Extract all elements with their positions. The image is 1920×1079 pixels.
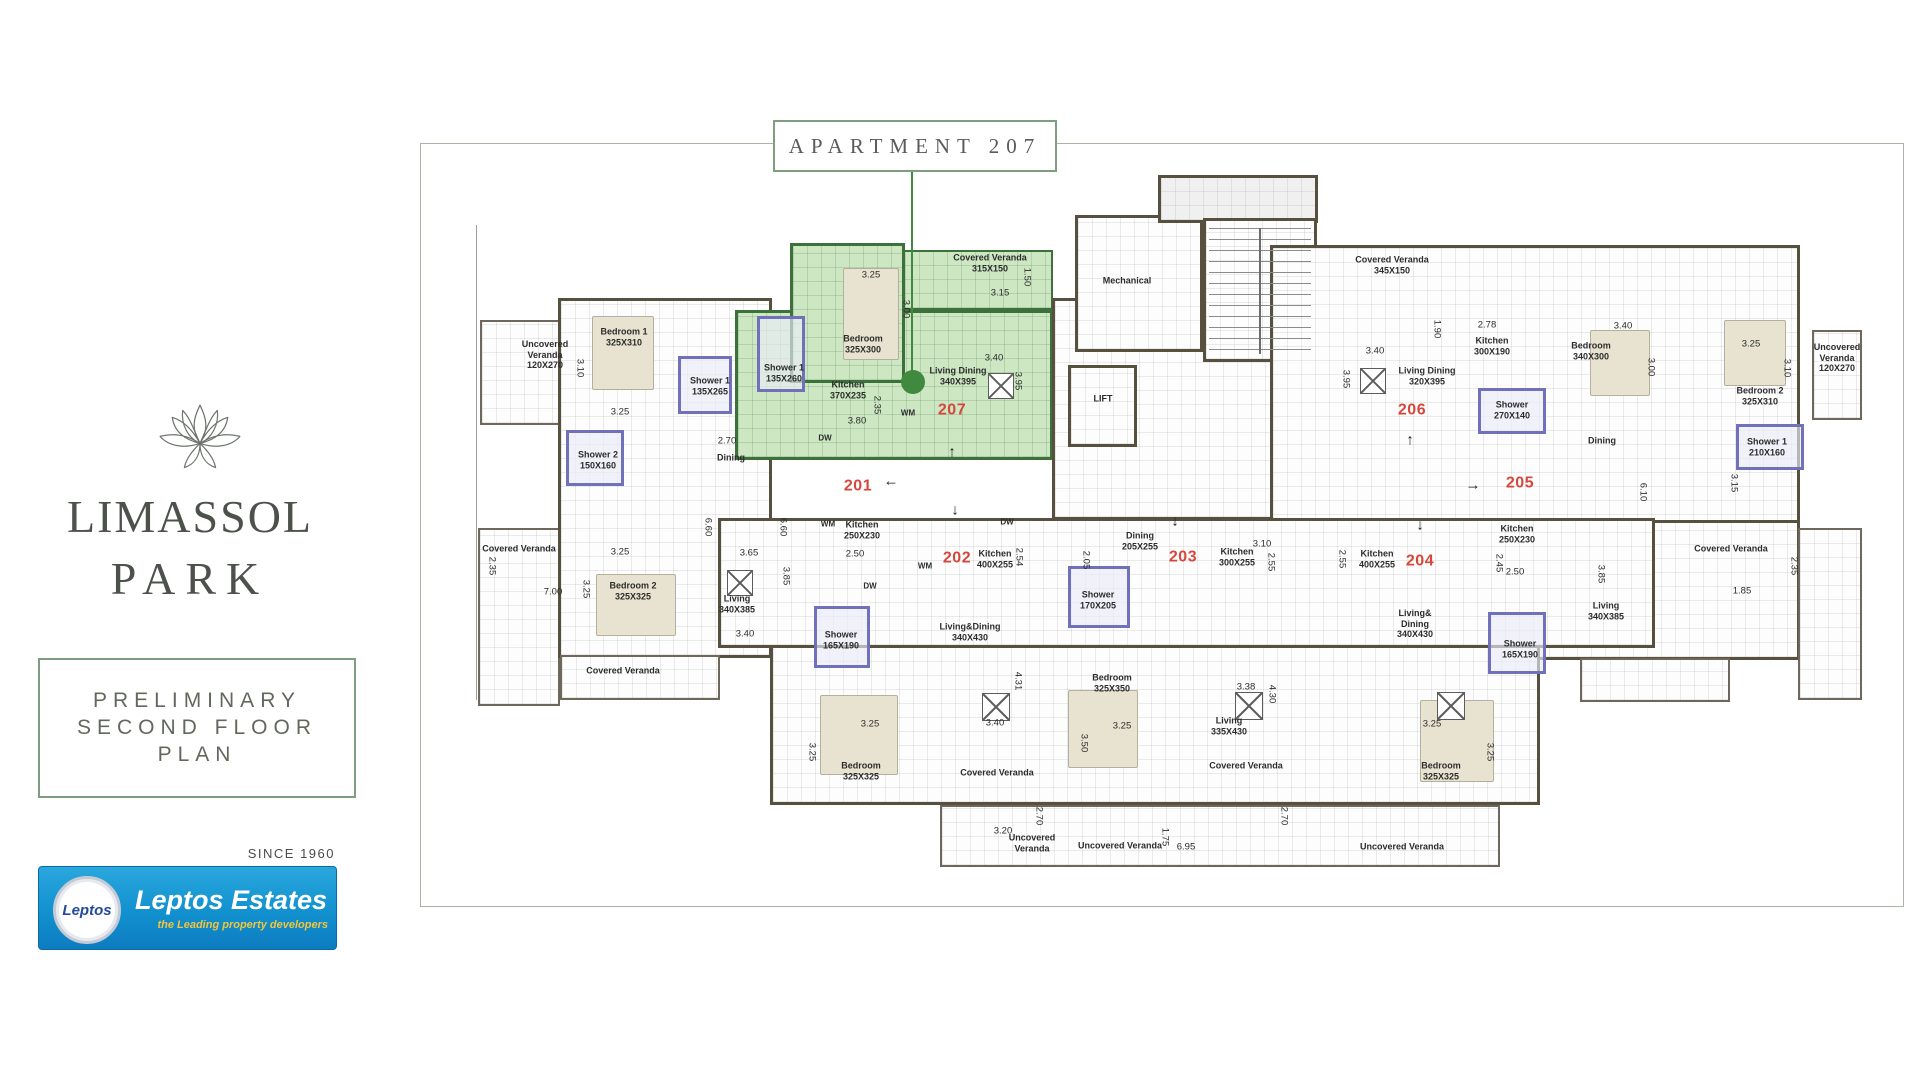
leptos-banner: Leptos Leptos Estates the Leading proper… xyxy=(38,866,337,950)
room-label: Covered Veranda xyxy=(1694,544,1768,555)
dimension-label: 2.35 xyxy=(486,557,497,576)
table-icon xyxy=(1437,692,1465,720)
room-label: Covered Veranda xyxy=(482,544,556,555)
dimension-label: 3.40 xyxy=(986,717,1005,728)
appliance-label: WM xyxy=(901,408,915,417)
room-label: Kitchen 300X190 xyxy=(1474,335,1510,356)
since-label: SINCE 1960 xyxy=(38,846,335,861)
table-icon xyxy=(1360,368,1386,394)
veranda-covered-left xyxy=(478,528,560,706)
room-label: Living&Dining 340X430 xyxy=(940,621,1001,642)
room-label: Uncovered Veranda 120X270 xyxy=(1814,342,1861,374)
dimension-label: 3.95 xyxy=(1012,372,1023,391)
dimension-label: 3.25 xyxy=(1113,720,1132,731)
leptos-tagline: the Leading property developers xyxy=(157,919,328,931)
room-label: Bedroom 325X350 xyxy=(1092,672,1132,693)
room-label: Bedroom 325X325 xyxy=(841,760,881,781)
room-label: Shower 1 135X265 xyxy=(690,375,730,396)
leptos-name: Leptos Estates xyxy=(131,885,331,916)
dimension-label: 3.25 xyxy=(611,406,630,417)
entry-arrow-icon: ↑ xyxy=(1406,432,1414,449)
dimension-label: 3.00 xyxy=(900,300,911,319)
room-label: Shower 270X140 xyxy=(1494,399,1530,420)
dimension-label: 1.50 xyxy=(1021,268,1032,287)
room-label: Covered Veranda xyxy=(1209,761,1283,772)
brand-name-line1: LIMASSOL xyxy=(40,490,340,543)
dimension-label: 3.85 xyxy=(1595,565,1606,584)
room-label: Covered Veranda xyxy=(586,666,660,677)
room-label: Kitchen 300X255 xyxy=(1219,546,1255,567)
dimension-label: 2.50 xyxy=(846,548,865,559)
dimension-label: 4.30 xyxy=(1266,685,1277,704)
dimension-label: 1.90 xyxy=(1431,320,1442,339)
block-lift xyxy=(1068,365,1137,447)
room-label: Kitchen 250X230 xyxy=(1499,523,1535,544)
dimension-label: 2.50 xyxy=(1506,566,1525,577)
dimension-label: 3.40 xyxy=(736,628,755,639)
appliance-label: WM xyxy=(821,519,835,528)
leptos-badge-text: Leptos xyxy=(62,902,111,919)
dimension-label: 3.25 xyxy=(1484,743,1495,762)
room-label: Uncovered Veranda xyxy=(1078,841,1162,852)
room-label: Kitchen 250X230 xyxy=(844,519,880,540)
dimension-label: 7.00 xyxy=(544,586,563,597)
room-label: Shower 170X205 xyxy=(1080,589,1116,610)
room-label: Shower 1 135X260 xyxy=(764,362,804,383)
dimension-label: 3.40 xyxy=(985,352,1004,363)
room-label: Covered Veranda xyxy=(960,768,1034,779)
entry-arrow-icon: ↑ xyxy=(948,444,956,461)
dimension-label: 2.35 xyxy=(871,396,882,415)
entry-arrow-icon: → xyxy=(1466,477,1481,494)
room-label: LIFT xyxy=(1094,394,1113,405)
apartment-callout: APARTMENT 207 xyxy=(773,120,1057,172)
plan-title-line1: PRELIMINARY xyxy=(40,689,354,713)
dimension-label: 2.78 xyxy=(1478,319,1497,330)
dimension-label: 3.25 xyxy=(580,580,591,599)
dimension-label: 2.35 xyxy=(1788,557,1799,576)
apartment-number-label: 204 xyxy=(1406,553,1434,572)
dimension-label: 2.05 xyxy=(1080,551,1091,570)
room-label: Shower 165X190 xyxy=(1502,638,1538,659)
apartment-number-label: 207 xyxy=(938,402,966,421)
plan-title-box: PRELIMINARY SECOND FLOOR PLAN xyxy=(38,658,356,798)
dimension-label: 3.80 xyxy=(848,415,867,426)
room-label: Living Dining 320X395 xyxy=(1399,365,1456,386)
room-label: Bedroom 2 325X325 xyxy=(609,580,656,601)
dimension-label: 3.15 xyxy=(991,287,1010,298)
appliance-label: DW xyxy=(1000,517,1013,526)
room-label: Dining xyxy=(717,453,745,464)
dimension-label: 2.54 xyxy=(1013,548,1024,567)
room-label: Bedroom 325X325 xyxy=(1421,760,1461,781)
room-label: Shower 2 150X160 xyxy=(578,449,618,470)
dimension-label: 1.75 xyxy=(1159,828,1170,847)
dimension-label: 3.50 xyxy=(1078,734,1089,753)
entry-arrow-icon: ↓ xyxy=(1171,513,1179,530)
dimension-label: 3.25 xyxy=(611,546,630,557)
room-label: Living& Dining 340X430 xyxy=(1397,608,1433,640)
plan-title-line2: SECOND FLOOR xyxy=(40,716,354,740)
apartment-number-label: 205 xyxy=(1506,475,1534,494)
veranda-covered-right xyxy=(1798,528,1862,700)
table-icon xyxy=(988,373,1014,399)
room-label: Shower 1 210X160 xyxy=(1747,436,1787,457)
brand-name-line2: PARK xyxy=(40,552,340,605)
dimension-label: 3.65 xyxy=(740,547,759,558)
room-label: Shower 165X190 xyxy=(823,629,859,650)
dimension-label: 3.40 xyxy=(1366,345,1385,356)
entry-arrow-icon: ← xyxy=(884,473,899,490)
apartment-number-label: 201 xyxy=(844,478,872,497)
appliance-label: DW xyxy=(818,433,831,442)
room-label: Covered Veranda 345X150 xyxy=(1355,254,1429,275)
dimension-label: 3.00 xyxy=(1645,358,1656,377)
callout-leader-line xyxy=(911,166,913,374)
room-label: Covered Veranda 315X150 xyxy=(953,252,1027,273)
dimension-label: 3.10 xyxy=(1253,538,1272,549)
apartment-number-label: 203 xyxy=(1169,549,1197,568)
dimension-label: 3.38 xyxy=(1237,681,1256,692)
veranda-uncovered-left xyxy=(480,320,568,425)
dimension-label: 3.15 xyxy=(1728,474,1739,493)
dimension-label: 2.55 xyxy=(1265,553,1276,572)
dimension-label: 3.25 xyxy=(861,718,880,729)
dimension-label: 3.10 xyxy=(574,359,585,378)
staircase-divider xyxy=(1259,228,1261,354)
dimension-label: 2.45 xyxy=(1493,554,1504,573)
page: LIMASSOL PARK PRELIMINARY SECOND FLOOR P… xyxy=(0,0,1920,1079)
dimension-label: 2.70 xyxy=(718,435,737,446)
apartment-number-label: 202 xyxy=(943,550,971,569)
dimension-label: 4.31 xyxy=(1012,672,1023,691)
veranda-covered-205 xyxy=(1580,658,1730,702)
dimension-label: 1.85 xyxy=(1733,585,1752,596)
dimension-label: 6.10 xyxy=(1637,483,1648,502)
dimension-label: 3.40 xyxy=(1614,320,1633,331)
leptos-badge-icon: Leptos xyxy=(53,876,121,944)
table-icon xyxy=(727,570,753,596)
room-label: Bedroom 1 325X310 xyxy=(600,326,647,347)
room-label: Kitchen 400X255 xyxy=(1359,548,1395,569)
room-label: Living 340X385 xyxy=(1588,600,1624,621)
lotus-logo-icon xyxy=(148,398,252,480)
dimension-label: 3.95 xyxy=(1340,370,1351,389)
dimension-label: 6.95 xyxy=(1177,841,1196,852)
appliance-label: DW xyxy=(863,581,876,590)
block-stair-bulkhead xyxy=(1158,175,1318,223)
room-label: Kitchen 370X235 xyxy=(830,379,866,400)
dimension-label: 6.60 xyxy=(702,518,713,537)
site-edge-line xyxy=(476,225,477,700)
dimension-label: 3.25 xyxy=(806,743,817,762)
dimension-label: 2.70 xyxy=(1278,807,1289,826)
dimension-label: 3.25 xyxy=(1423,718,1442,729)
dimension-label: 3.25 xyxy=(1742,338,1761,349)
room-label: Uncovered Veranda 120X270 xyxy=(522,339,569,371)
room-label: Dining xyxy=(1588,436,1616,447)
dimension-label: 6.60 xyxy=(777,518,788,537)
room-label: Mechanical xyxy=(1103,276,1152,287)
room-label: Bedroom 325X300 xyxy=(843,333,883,354)
room-label: Kitchen 400X255 xyxy=(977,548,1013,569)
room-label: Living Dining 340X395 xyxy=(930,365,987,386)
apartment-number-label: 206 xyxy=(1398,402,1426,421)
room-label: Uncovered Veranda xyxy=(1009,832,1056,853)
entry-arrow-icon: ↓ xyxy=(951,502,959,519)
room-label: Uncovered Veranda xyxy=(1360,842,1444,853)
plan-title-line3: PLAN xyxy=(40,743,354,767)
room-label: Dining 205X255 xyxy=(1122,530,1158,551)
entry-arrow-icon: ↓ xyxy=(1416,517,1424,534)
dimension-label: 2.55 xyxy=(1336,550,1347,569)
room-label: Bedroom 2 325X310 xyxy=(1736,385,1783,406)
room-label: Living 340X385 xyxy=(719,593,755,614)
bed-205-bedroom2 xyxy=(1724,320,1786,386)
dimension-label: 3.85 xyxy=(780,567,791,586)
dimension-label: 3.10 xyxy=(1781,359,1792,378)
room-label: Living 335X430 xyxy=(1211,715,1247,736)
dimension-label: 2.70 xyxy=(1033,807,1044,826)
veranda-covered-201 xyxy=(560,655,720,700)
dimension-label: 3.25 xyxy=(862,269,881,280)
room-label: Bedroom 340X300 xyxy=(1571,340,1611,361)
apartment-207-marker xyxy=(901,370,925,394)
appliance-label: WM xyxy=(918,561,932,570)
